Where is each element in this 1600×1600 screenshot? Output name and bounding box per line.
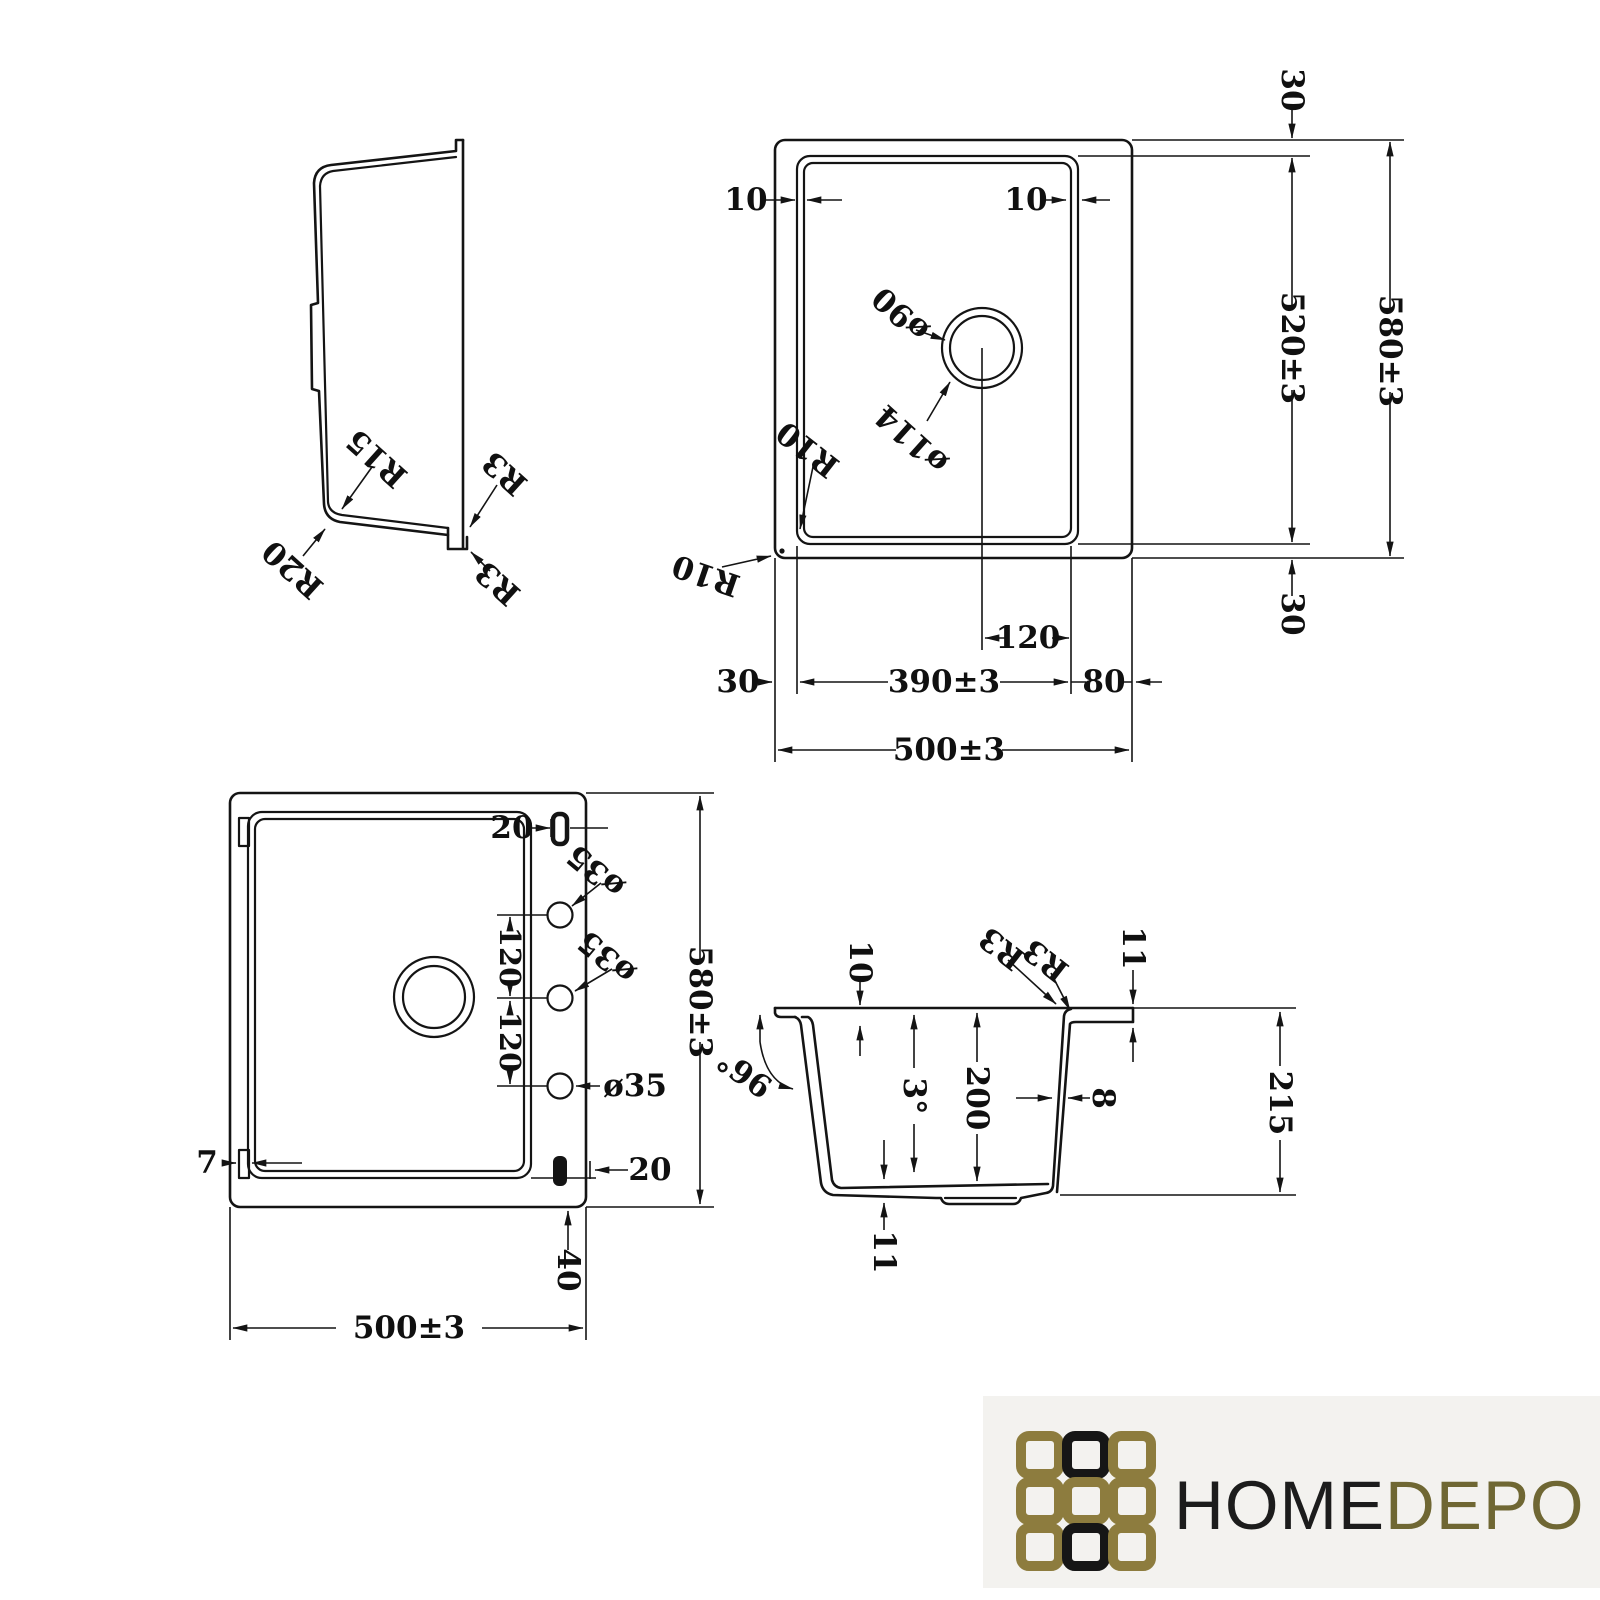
section-bowl-outer <box>795 1009 1071 1204</box>
label-drain-dia: ø90 <box>865 279 937 348</box>
dim-overall-length: 580±3 <box>1372 295 1408 407</box>
mounting-slot-top <box>553 814 567 844</box>
dim-slot-top-offset: 20 <box>490 810 533 846</box>
dim-slot-bottom-offset: 20 <box>628 1152 671 1188</box>
leader-r3-inner <box>470 485 497 527</box>
label-radius-b: R3 <box>1016 931 1075 989</box>
dim-margin-bottom: 30 <box>1274 592 1310 635</box>
dim-floor-thickness: 11 <box>866 1230 902 1273</box>
dim-draft-angle: 3° <box>896 1077 932 1114</box>
dim-20-top-tail <box>551 819 608 837</box>
drain-hole-circle <box>403 966 465 1028</box>
extension-lines-right <box>1078 140 1404 558</box>
logo-wordmark: HOMEDEPO <box>1174 1467 1585 1544</box>
label-radius-a: R3 <box>972 919 1031 977</box>
label-hole-top: ø35 <box>560 837 632 906</box>
dim-overall-height: 215 <box>1262 1071 1298 1136</box>
dim-overall-length: 580±3 <box>682 946 718 1058</box>
side-profile-face-and-foot <box>448 140 467 549</box>
section-view: 10 R3 R3 11 96° 3° 200 8 215 11 <box>711 919 1298 1273</box>
dim-rim-left: 10 <box>724 182 767 218</box>
dim-base-offset: 40 <box>550 1248 586 1291</box>
logo-text-depo: DEPO <box>1385 1467 1585 1544</box>
dim-hole-spacing-top: 120 <box>493 927 527 988</box>
dim-hole-spacing-bottom: 120 <box>493 1012 527 1073</box>
drain-flange-circle <box>394 957 474 1037</box>
bowl-opening-inner <box>804 163 1071 537</box>
bowl-footprint-inner <box>255 819 524 1171</box>
label-hole-mid: ø35 <box>571 923 643 992</box>
sink-technical-drawing-page: R15 R20 R3 R3 520±3 580±3 30 30 10 10 <box>0 0 1600 1600</box>
dim-margin-top: 30 <box>1274 68 1310 111</box>
label-corner-outer: R10 <box>668 547 745 603</box>
technical-drawing-canvas: R15 R20 R3 R3 520±3 580±3 30 30 10 10 <box>0 0 1600 1600</box>
sink-base-outline <box>230 793 586 1207</box>
mounting-slot-bottom <box>553 1156 567 1186</box>
dim-overall-width: 500±3 <box>893 732 1005 768</box>
dim-inner-length: 520±3 <box>1274 292 1310 404</box>
dim-bowl-width: 390±3 <box>888 664 1000 700</box>
leader-flange-dia <box>927 382 950 421</box>
dim-rim-inset: 10 <box>842 940 878 983</box>
extension-lines-bottom <box>775 546 1132 762</box>
label-r20: R20 <box>255 533 330 606</box>
tap-hole-top <box>548 903 573 928</box>
dim-rim-thickness: 11 <box>1115 926 1151 969</box>
logo-text-home: HOME <box>1174 1467 1385 1544</box>
side-profile-view: R15 R20 R3 R3 <box>255 140 534 612</box>
label-r15: R15 <box>339 422 414 495</box>
dim-rim-right: 10 <box>1004 182 1047 218</box>
dim-wall-thickness: 8 <box>1085 1087 1121 1109</box>
homedepo-logo: HOMEDEPO <box>983 1396 1600 1588</box>
leader-dot <box>779 548 784 553</box>
dim-drain-offset: 120 <box>996 620 1061 656</box>
top-view: 520±3 580±3 30 30 10 10 120 390±3 30 80 … <box>668 68 1408 768</box>
dim-margin-right: 80 <box>1082 664 1125 700</box>
bottom-view: 120 120 ø35 ø35 ø35 20 20 7 580±3 40 <box>196 793 718 1346</box>
tap-hole-middle <box>548 986 573 1011</box>
dim-bowl-depth: 200 <box>959 1066 995 1131</box>
bowl-footprint-outer <box>248 812 531 1178</box>
section-left-rim <box>775 1008 795 1017</box>
label-drain-flange-dia: ø114 <box>868 397 956 481</box>
dim-tab-width: 7 <box>196 1145 218 1181</box>
leader-r20 <box>303 529 325 556</box>
dim-overall-width: 500±3 <box>353 1310 465 1346</box>
dim-margin-left: 30 <box>716 664 759 700</box>
dim-rim-angle: 96° <box>711 1041 780 1104</box>
tap-hole-bottom <box>548 1074 573 1099</box>
label-r3-inner: R3 <box>475 444 534 502</box>
label-hole-bottom: ø35 <box>603 1068 667 1104</box>
label-r3-outer: R3 <box>468 554 527 612</box>
label-corner-inner: R10 <box>770 414 846 485</box>
